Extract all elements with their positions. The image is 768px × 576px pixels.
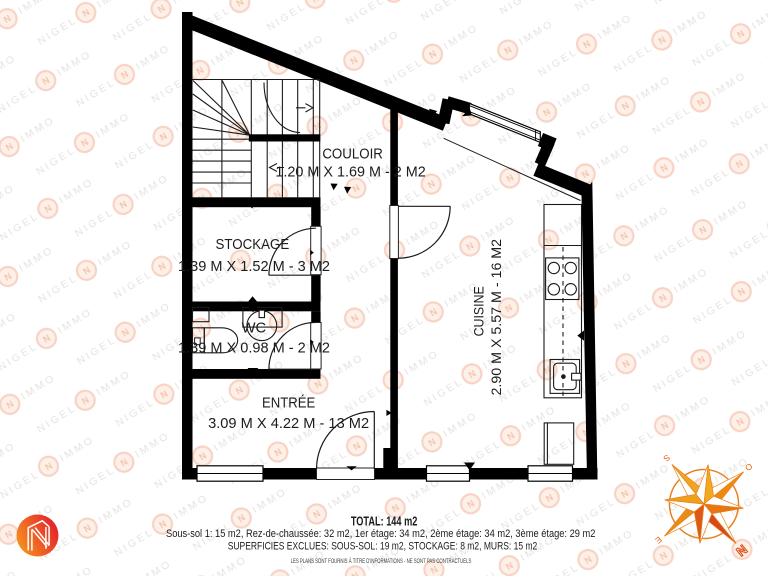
svg-text:TOTAL: 144 m2: TOTAL: 144 m2: [351, 514, 418, 528]
svg-text:1.39 M X 1.52 M - 3 M2: 1.39 M X 1.52 M - 3 M2: [178, 258, 330, 275]
svg-text:3.09 M X 4.22 M - 13 M2: 3.09 M X 4.22 M - 13 M2: [208, 415, 369, 432]
svg-text:WC: WC: [242, 320, 267, 337]
svg-text:CUISINE: CUISINE: [470, 286, 486, 336]
svg-text:COULOIR: COULOIR: [322, 145, 383, 162]
svg-text:Sous-sol 1: 15 m2, Rez-de-chau: Sous-sol 1: 15 m2, Rez-de-chaussée: 32 m…: [166, 528, 595, 540]
svg-text:LES PLANS SONT FOURNIS À TITRE: LES PLANS SONT FOURNIS À TITRE D'INFORMA…: [291, 558, 472, 565]
svg-text:1.39 M X 0.98 M - 2 M2: 1.39 M X 0.98 M - 2 M2: [178, 340, 330, 357]
svg-text:ENTRÉE: ENTRÉE: [262, 394, 315, 411]
svg-text:STOCKAGE: STOCKAGE: [216, 236, 290, 253]
svg-text:SUPERFICIES EXCLUES: SOUS-SOL:: SUPERFICIES EXCLUES: SOUS-SOL: 19 m2, ST…: [228, 541, 538, 553]
svg-text:2.90 M X 5.57 M - 16 M2: 2.90 M X 5.57 M - 16 M2: [488, 239, 504, 396]
svg-text:1.20 M X 1.69 M - 2 M2: 1.20 M X 1.69 M - 2 M2: [275, 163, 425, 180]
